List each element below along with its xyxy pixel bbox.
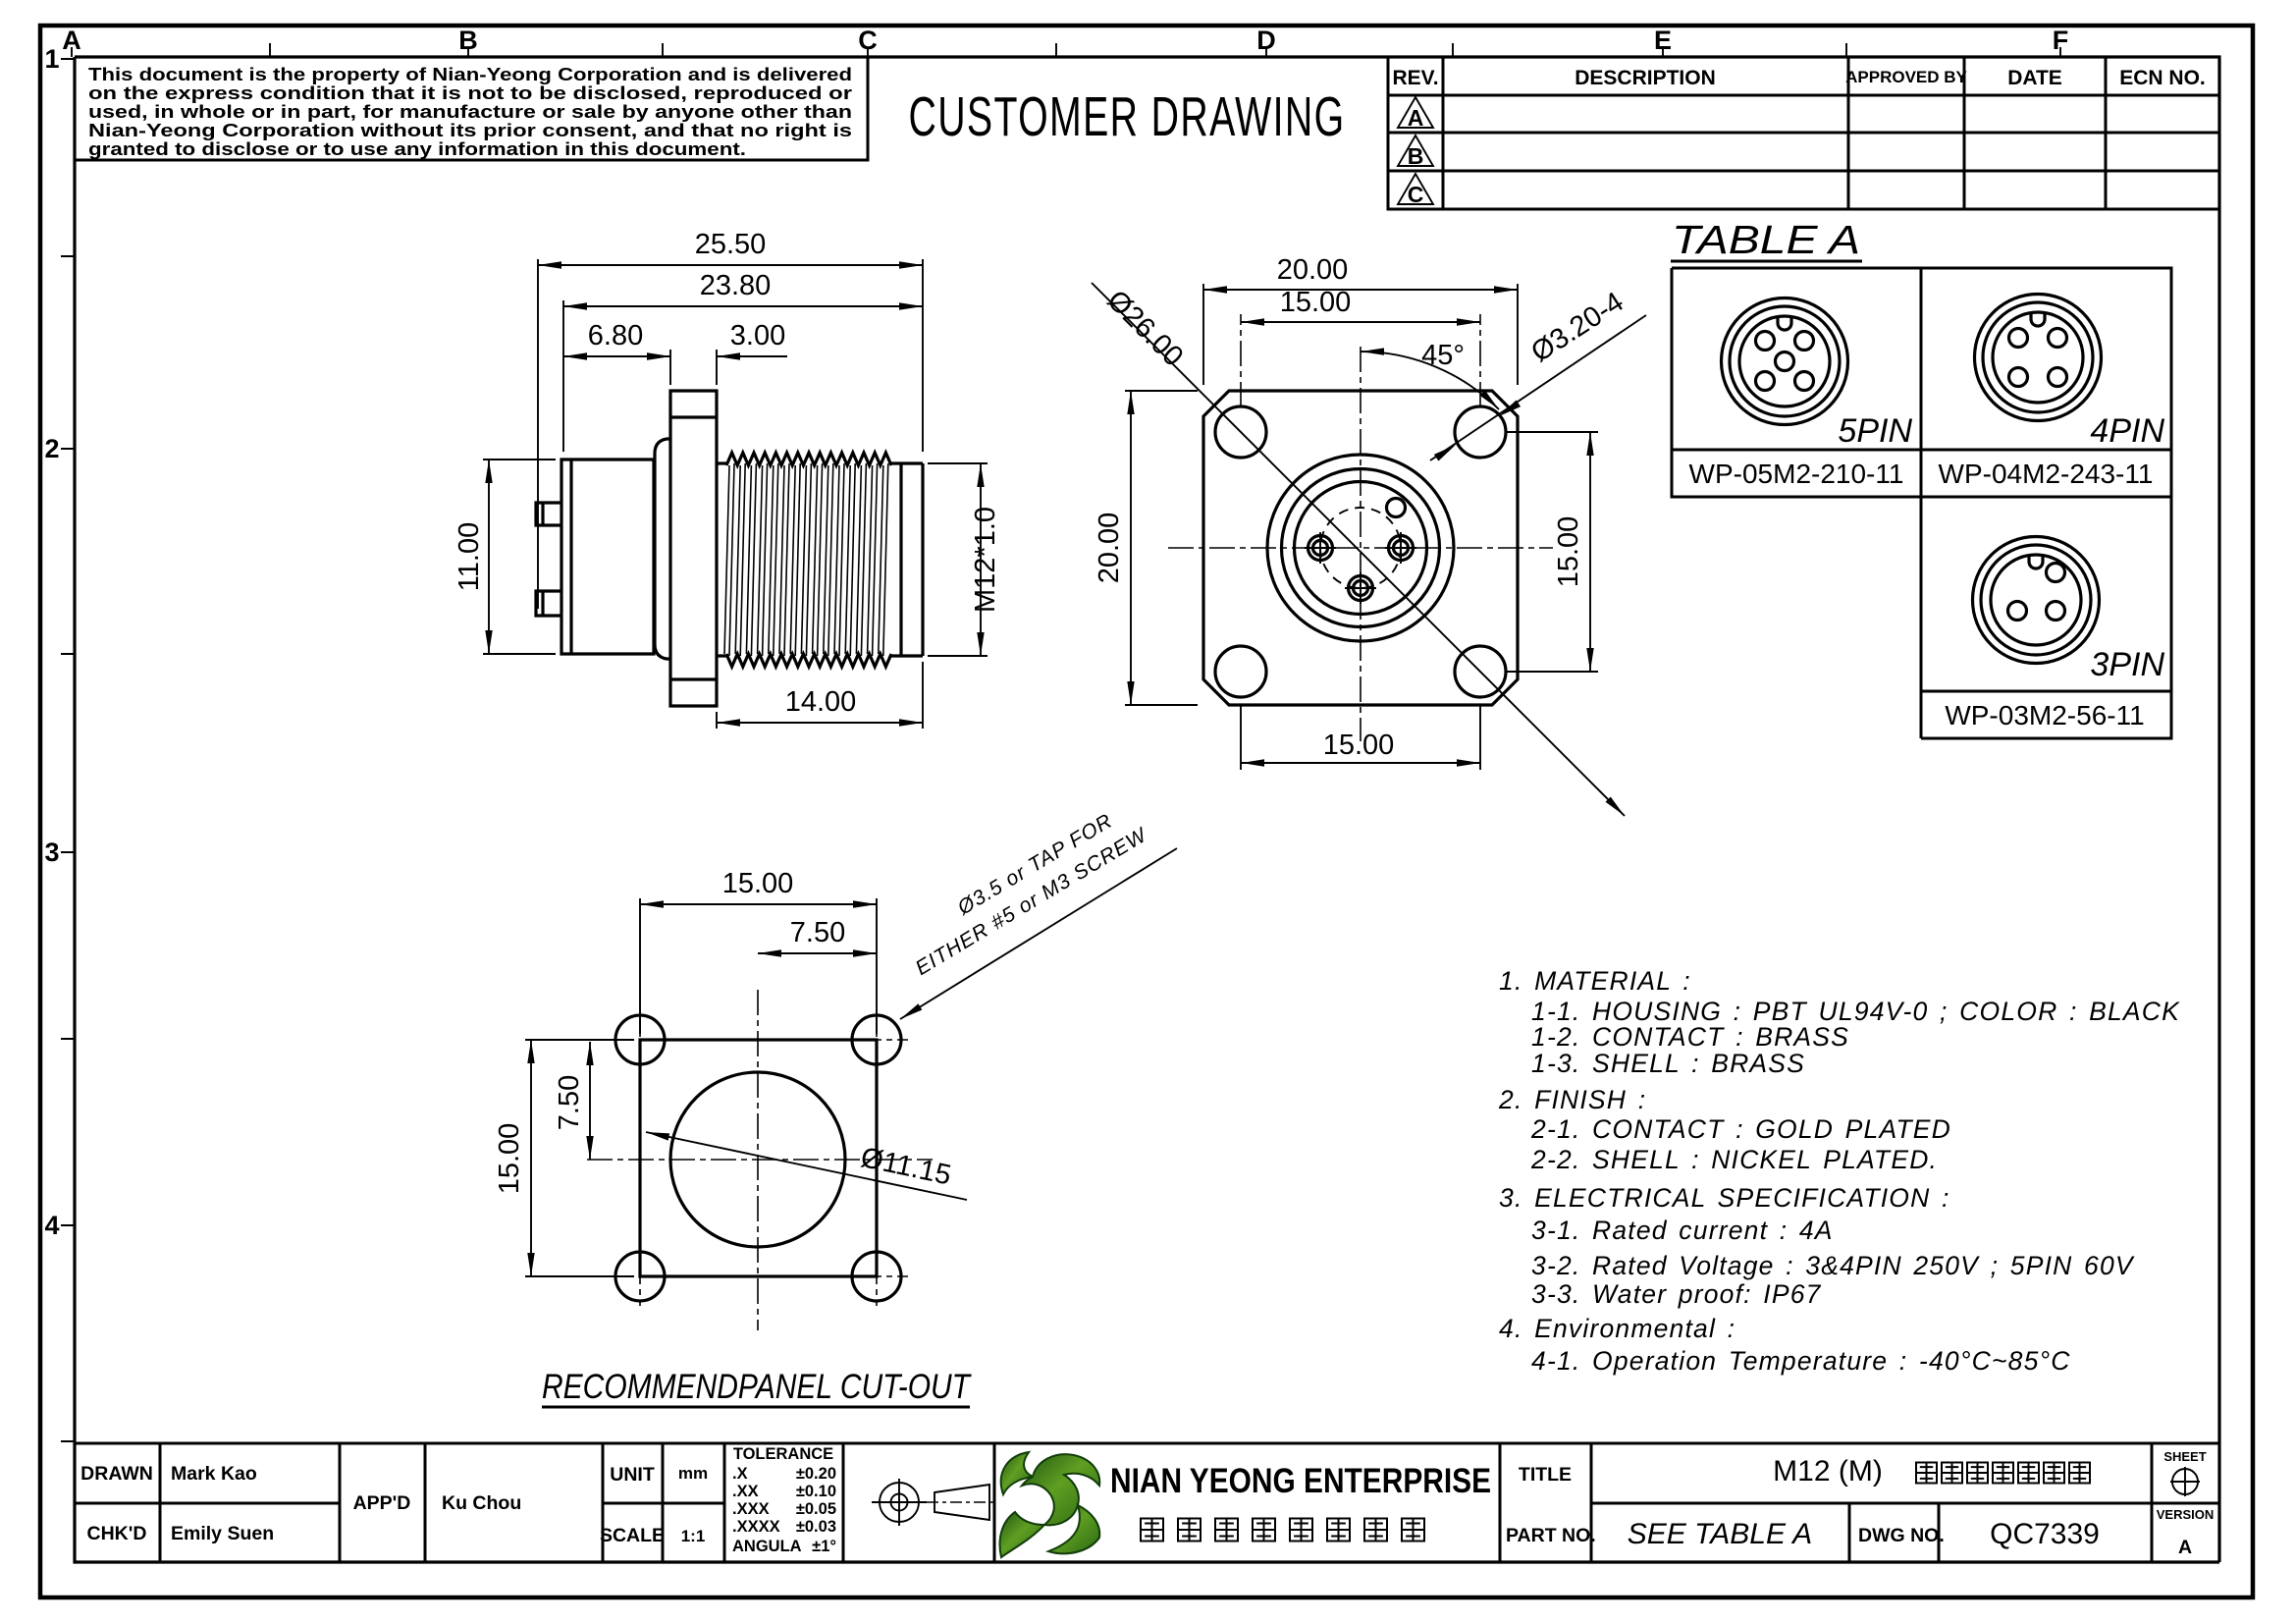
svg-text:SHEET: SHEET xyxy=(2163,1449,2206,1464)
svg-text:15.00: 15.00 xyxy=(1280,287,1352,318)
svg-text:2: 2 xyxy=(44,434,59,463)
svg-text:45°: 45° xyxy=(1421,340,1465,371)
svg-text:1-3. SHELL : BRASS: 1-3. SHELL : BRASS xyxy=(1531,1049,1805,1078)
svg-text:15.00: 15.00 xyxy=(1553,516,1584,588)
svg-text:REV.: REV. xyxy=(1392,67,1438,89)
svg-text:DRAWN: DRAWN xyxy=(80,1463,153,1485)
svg-text:TITLE: TITLE xyxy=(1519,1464,1572,1486)
svg-text:23.80: 23.80 xyxy=(700,270,772,301)
svg-text:15.00: 15.00 xyxy=(494,1123,525,1195)
svg-text:A: A xyxy=(2178,1537,2192,1558)
svg-text:7.50: 7.50 xyxy=(790,917,845,948)
svg-text:4. Environmental :: 4. Environmental : xyxy=(1499,1314,1735,1343)
svg-text:A: A xyxy=(1408,105,1424,131)
svg-text:1-2. CONTACT : BRASS: 1-2. CONTACT : BRASS xyxy=(1531,1022,1849,1052)
svg-text:7.50: 7.50 xyxy=(554,1075,585,1130)
svg-text:1:1: 1:1 xyxy=(681,1527,706,1545)
svg-text:Mark Kao: Mark Kao xyxy=(171,1463,257,1485)
svg-text:1. MATERIAL :: 1. MATERIAL : xyxy=(1499,966,1691,996)
svg-text:WP-03M2-56-11: WP-03M2-56-11 xyxy=(1945,700,2144,730)
svg-text:4: 4 xyxy=(44,1211,59,1240)
svg-text:C: C xyxy=(1408,182,1424,207)
svg-text:TABLE A: TABLE A xyxy=(1672,217,1860,262)
svg-text:2. FINISH :: 2. FINISH : xyxy=(1498,1085,1646,1114)
svg-text:mm: mm xyxy=(678,1464,708,1483)
svg-text:APP'D: APP'D xyxy=(353,1492,411,1514)
svg-text:C: C xyxy=(858,26,878,55)
svg-text:20.00: 20.00 xyxy=(1094,513,1125,584)
svg-text:Emily Suen: Emily Suen xyxy=(171,1523,274,1544)
svg-text:3: 3 xyxy=(44,838,59,867)
svg-text:RECOMMENDPANEL CUT-OUT: RECOMMENDPANEL CUT-OUT xyxy=(542,1368,972,1406)
svg-text:3-1. Rated current : 4A: 3-1. Rated current : 4A xyxy=(1531,1216,1834,1245)
svg-text:Nian-Yeong Corporation without: Nian-Yeong Corporation without its prior… xyxy=(88,121,852,140)
svg-text:14.00: 14.00 xyxy=(785,686,857,718)
svg-text:15.00: 15.00 xyxy=(1323,730,1395,761)
svg-text:20.00: 20.00 xyxy=(1277,254,1349,286)
svg-text:D: D xyxy=(1256,26,1276,55)
svg-text:±0.10: ±0.10 xyxy=(796,1483,836,1500)
svg-text:.XXXX: .XXXX xyxy=(732,1518,780,1536)
svg-text:E: E xyxy=(1654,26,1672,55)
svg-text:used, in whole or in part, for: used, in whole or in part, for manufactu… xyxy=(88,102,852,122)
svg-text:WP-05M2-210-11: WP-05M2-210-11 xyxy=(1689,459,1904,489)
svg-text:DATE: DATE xyxy=(2007,67,2062,89)
svg-text:This document is the property: This document is the property of Nian-Ye… xyxy=(88,65,852,84)
svg-text:M12 (M): M12 (M) xyxy=(1773,1455,1883,1488)
svg-text:±0.20: ±0.20 xyxy=(796,1465,836,1483)
svg-text:Ku Chou: Ku Chou xyxy=(442,1492,521,1514)
svg-text:NIAN YEONG ENTERPRISE: NIAN YEONG ENTERPRISE xyxy=(1110,1462,1491,1500)
svg-text:APPROVED BY: APPROVED BY xyxy=(1845,68,1967,86)
svg-text:6.80: 6.80 xyxy=(588,320,643,352)
svg-text:3.00: 3.00 xyxy=(730,320,785,352)
svg-text:±0.03: ±0.03 xyxy=(796,1518,836,1536)
svg-text:DWG NO.: DWG NO. xyxy=(1858,1525,1945,1546)
svg-text:F: F xyxy=(2053,26,2069,55)
svg-text:±0.05: ±0.05 xyxy=(796,1500,836,1518)
svg-text:3-3. Water proof: IP67: 3-3. Water proof: IP67 xyxy=(1531,1279,1822,1309)
svg-text:25.50: 25.50 xyxy=(695,229,767,260)
svg-text:CUSTOMER DRAWING: CUSTOMER DRAWING xyxy=(909,85,1346,148)
svg-text:1: 1 xyxy=(44,44,59,74)
svg-text:A: A xyxy=(62,26,81,55)
svg-text:QC7339: QC7339 xyxy=(1990,1518,2100,1550)
svg-text:M12*1.0: M12*1.0 xyxy=(970,507,1001,613)
svg-text:PART NO.: PART NO. xyxy=(1506,1525,1596,1546)
svg-text:B: B xyxy=(1408,143,1424,169)
svg-text:.XX: .XX xyxy=(732,1483,759,1500)
svg-text:CHK'D: CHK'D xyxy=(87,1523,147,1544)
svg-text:±1°: ±1° xyxy=(812,1538,836,1555)
svg-text:SCALE: SCALE xyxy=(600,1525,665,1546)
svg-text:UNIT: UNIT xyxy=(610,1464,655,1486)
svg-text:.X: .X xyxy=(732,1465,748,1483)
svg-text:3. ELECTRICAL SPECIFICATION: 3. ELECTRICAL SPECIFICATION : xyxy=(1499,1183,1950,1213)
svg-text:SEE TABLE A: SEE TABLE A xyxy=(1628,1518,1812,1550)
svg-text:3PIN: 3PIN xyxy=(2090,646,2164,683)
svg-text:TOLERANCE: TOLERANCE xyxy=(733,1445,833,1463)
svg-text:on the express condition tha: on the express condition that it is not … xyxy=(88,83,852,103)
svg-text:2-1. CONTACT : GOLD PLATED: 2-1. CONTACT : GOLD PLATED xyxy=(1530,1114,1951,1144)
svg-text:DESCRIPTION: DESCRIPTION xyxy=(1575,67,1716,89)
svg-text:15.00: 15.00 xyxy=(722,868,794,899)
svg-text:ANGULA: ANGULA xyxy=(732,1538,802,1555)
svg-text:4PIN: 4PIN xyxy=(2090,412,2164,450)
svg-text:granted to disclose or to use: granted to disclose or to use any inform… xyxy=(88,139,746,159)
svg-text:3-2. Rated Voltage : 3&4PI: 3-2. Rated Voltage : 3&4PIN 250V ; 5PIN … xyxy=(1531,1251,2135,1280)
svg-text:2-2. SHELL : NICKEL PLATED.: 2-2. SHELL : NICKEL PLATED. xyxy=(1530,1145,1938,1174)
svg-text:WP-04M2-243-11: WP-04M2-243-11 xyxy=(1939,459,2154,489)
svg-text:4-1. Operation Temperature: 4-1. Operation Temperature : -40°C~85°C xyxy=(1531,1346,2071,1376)
svg-text:VERSION: VERSION xyxy=(2157,1507,2215,1522)
svg-text:11.00: 11.00 xyxy=(454,522,485,591)
svg-text:.XXX: .XXX xyxy=(732,1500,770,1518)
svg-text:B: B xyxy=(458,26,478,55)
svg-text:5PIN: 5PIN xyxy=(1838,412,1912,450)
svg-text:ECN NO.: ECN NO. xyxy=(2119,67,2206,89)
